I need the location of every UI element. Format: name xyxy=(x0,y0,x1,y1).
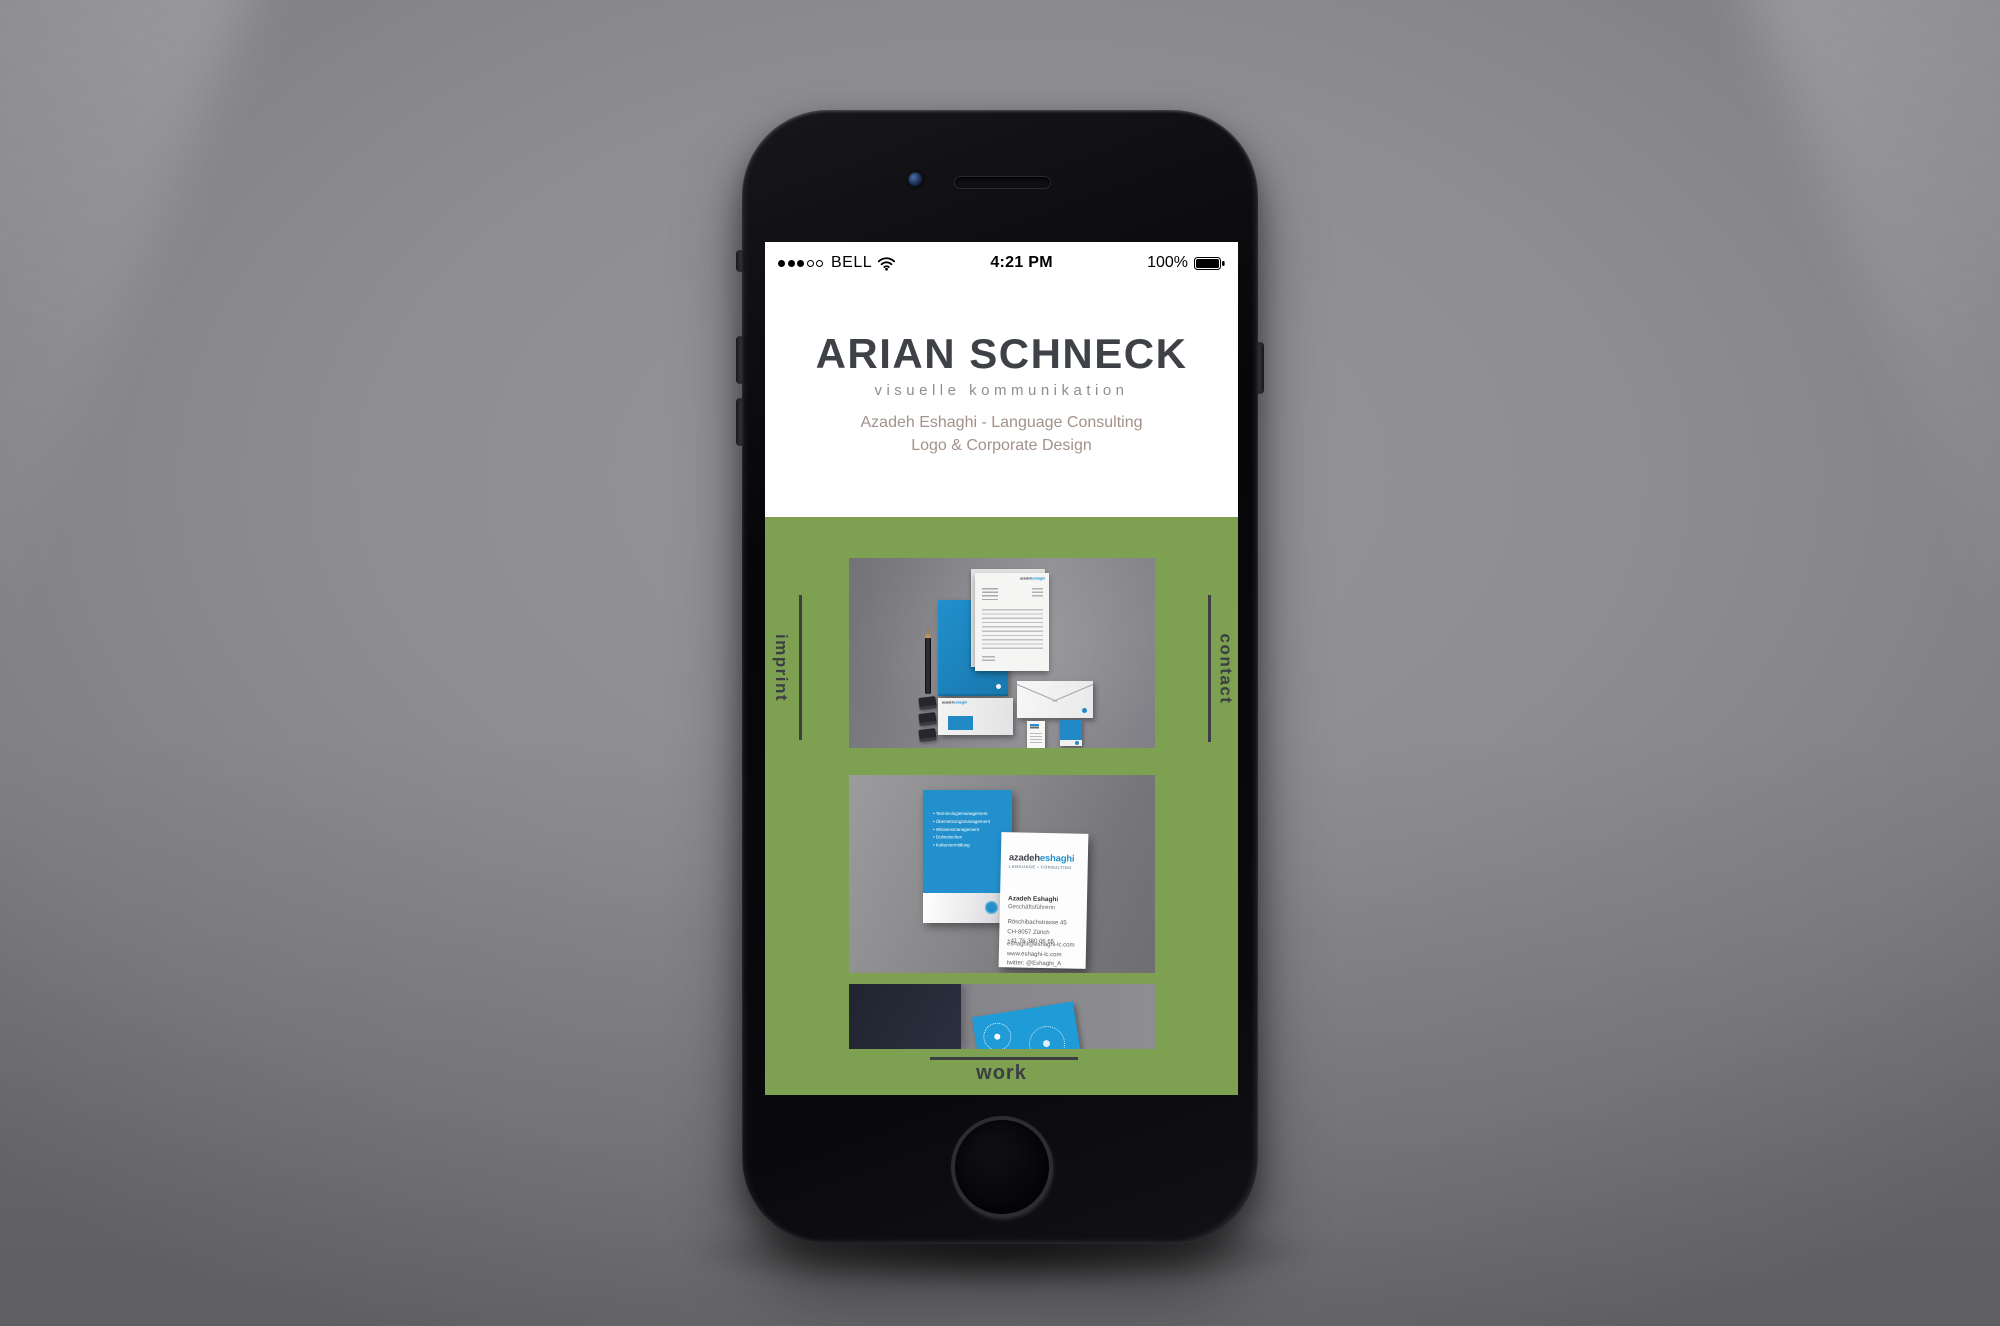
dark-folder-edge xyxy=(849,984,961,1049)
pencil-shaft xyxy=(925,638,931,694)
letterhead-signature-lines xyxy=(982,656,995,663)
business-card-back-small xyxy=(1060,720,1082,746)
backdrop: BELL 4:21 PM 100% xyxy=(0,0,2000,1326)
logo-pattern-circle xyxy=(981,1021,1013,1049)
portfolio-section: imprint contact azadeheshaghi xyxy=(765,517,1238,1095)
battery-percent: 100% xyxy=(1147,254,1188,272)
letterhead-address-lines xyxy=(982,588,998,601)
folder-logo-dot xyxy=(996,684,1001,689)
binder-clip xyxy=(918,728,936,742)
volume-up-button xyxy=(736,336,745,384)
business-card-front: azadeheshaghi LANGUAGE • CONSULTING Azad… xyxy=(999,832,1089,969)
card-name: Azadeh Eshaghi xyxy=(1008,895,1058,903)
nav-contact[interactable]: contact xyxy=(1210,595,1238,742)
letterhead: azadeheshaghi xyxy=(975,573,1049,671)
nav-work[interactable]: work xyxy=(765,1062,1238,1085)
flap-line xyxy=(1017,683,1057,702)
work-item-card-detail[interactable] xyxy=(849,984,1155,1049)
mini-card-text-lines xyxy=(1030,733,1042,744)
home-button[interactable] xyxy=(951,1116,1053,1218)
phone-screen: BELL 4:21 PM 100% xyxy=(765,242,1238,1095)
mini-card-logo-bar xyxy=(1030,724,1039,726)
pencil-tip xyxy=(925,628,931,638)
page-title: ARIAN SCHNECK xyxy=(765,284,1238,378)
brand-logo-circle xyxy=(985,901,998,914)
earpiece-speaker xyxy=(954,176,1051,189)
status-left: BELL xyxy=(778,254,896,272)
pencil xyxy=(925,628,931,694)
work-item-stationery[interactable]: azadeheshaghi azadeheshaghi xyxy=(849,558,1155,748)
tagline-service: Logo & Corporate Design xyxy=(765,435,1238,458)
card-brand: azadeheshaghi xyxy=(1009,852,1075,864)
work-divider-line xyxy=(930,1057,1078,1060)
work-item-business-cards[interactable]: TerminologiemanagementÜbersetzungsmanage… xyxy=(849,775,1155,973)
nav-imprint[interactable]: imprint xyxy=(766,595,796,740)
clock: 4:21 PM xyxy=(896,254,1147,272)
imprint-divider-line xyxy=(799,595,802,740)
list-item: Terminologiemanagement xyxy=(933,810,1022,818)
mini-card-band xyxy=(1060,740,1082,746)
taglines: Azadeh Eshaghi - Language Consulting Log… xyxy=(765,412,1238,457)
business-card-front-small xyxy=(1027,721,1045,748)
page-subtitle: visuelle kommunikation xyxy=(765,382,1238,399)
volume-down-button xyxy=(736,398,745,446)
logo-pattern-circle xyxy=(1026,1023,1067,1049)
binder-clip xyxy=(918,696,936,710)
flap-line xyxy=(1053,683,1093,702)
card-role: Geschäftsführerin xyxy=(1008,904,1055,911)
mini-card-logo-dot xyxy=(1075,741,1079,745)
light-beam-left xyxy=(0,0,264,934)
list-item: Übersetzungsmanagement xyxy=(933,818,1022,826)
status-right: 100% xyxy=(1147,254,1225,272)
window-envelope: azadeheshaghi xyxy=(938,698,1013,735)
site-header: ARIAN SCHNECK visuelle kommunikation Aza… xyxy=(765,284,1238,457)
nav-imprint-label: imprint xyxy=(771,633,791,701)
card-tagline: LANGUAGE • CONSULTING xyxy=(1009,864,1096,870)
mute-switch xyxy=(736,250,745,272)
carrier-label: BELL xyxy=(831,254,872,272)
letterhead-body-lines xyxy=(982,609,1043,651)
tagline-project: Azadeh Eshaghi - Language Consulting xyxy=(765,412,1238,435)
angled-blue-card xyxy=(972,1001,1084,1049)
front-camera xyxy=(908,172,923,187)
signal-strength-icon xyxy=(778,260,823,267)
card-twitter: twitter: @Eshaghi_A xyxy=(1007,959,1075,970)
binder-clip xyxy=(918,712,936,726)
envelope-window-pane xyxy=(948,716,973,730)
power-button xyxy=(1255,342,1264,394)
letterhead-logo: azadeheshaghi xyxy=(1020,577,1045,581)
business-card-back: TerminologiemanagementÜbersetzungsmanage… xyxy=(923,790,1012,923)
letterhead-date-lines xyxy=(1032,588,1043,598)
envelope-logo-dot xyxy=(1082,708,1087,713)
battery-icon xyxy=(1194,257,1225,270)
status-bar: BELL 4:21 PM 100% xyxy=(765,242,1238,284)
wifi-icon xyxy=(877,256,896,271)
nav-contact-label: contact xyxy=(1215,633,1235,704)
card-contact: eshaghi@eshaghi-lc.com www.eshaghi-lc.co… xyxy=(1007,940,1075,970)
light-beam-right xyxy=(1736,0,2000,934)
envelope-logo: azadeheshaghi xyxy=(942,701,967,705)
phone-body: BELL 4:21 PM 100% xyxy=(742,110,1258,1244)
flap-envelope xyxy=(1017,681,1093,718)
